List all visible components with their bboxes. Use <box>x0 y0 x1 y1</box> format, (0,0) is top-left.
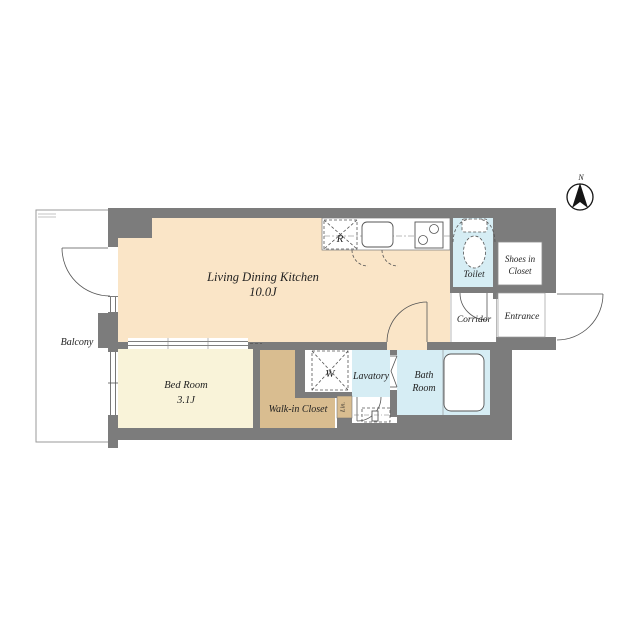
wall-segment <box>108 428 512 440</box>
floor-plan-canvas: N Living Dining Kitchen 10.0J Bed Room 3… <box>0 0 640 640</box>
label-toilet: Toilet <box>463 270 485 280</box>
label-balcony: Balcony <box>61 337 94 348</box>
label-bath-room: Bath <box>415 370 434 381</box>
label-lavatory: Lavatory <box>352 371 390 382</box>
toilet-tank-icon <box>462 219 487 232</box>
wall-segment <box>337 418 352 428</box>
wall-segment <box>390 350 397 355</box>
washbasin-icon <box>372 411 378 421</box>
wall-segment <box>490 350 512 428</box>
entrance-door-arc-icon <box>557 294 603 340</box>
balcony-doorway <box>108 247 118 296</box>
toilet-bowl-icon <box>464 236 486 268</box>
wall-segment <box>397 415 490 428</box>
label-corridor: Corridor <box>457 315 492 325</box>
room-ldk <box>118 238 450 342</box>
wall-segment <box>493 293 498 299</box>
wall-segment <box>260 342 387 350</box>
label-ldk: Living Dining Kitchen <box>206 270 319 284</box>
label-bath-room: Room <box>411 383 435 394</box>
bath-bifold-door-icon <box>391 356 397 387</box>
label-shoes-closet: Closet <box>508 266 532 276</box>
wall-segment <box>98 313 112 348</box>
wall-segment <box>390 390 397 417</box>
label-entrance: Entrance <box>504 312 540 322</box>
wall-segment <box>352 423 397 428</box>
wall-segment <box>295 342 305 398</box>
ldk-lavatory-doorway <box>387 342 427 350</box>
label-bedroom: Bed Room <box>164 380 208 391</box>
floor-plan: N Living Dining Kitchen 10.0J Bed Room 3… <box>0 0 640 640</box>
wall-segment <box>427 342 496 350</box>
label-refrigerator: R <box>336 233 344 245</box>
north-arrow-icon <box>572 183 588 208</box>
label-walk-in-closet: Walk-in Closet <box>269 404 328 415</box>
wall-segment <box>253 349 260 428</box>
label-ldk-size: 10.0J <box>249 285 278 299</box>
label-bedroom-size: 3.1J <box>176 395 196 406</box>
bathtub-icon <box>444 354 484 411</box>
kitchen-sink-icon <box>362 222 393 247</box>
bedroom-window <box>108 352 118 415</box>
wall-segment <box>496 337 556 350</box>
wall-segment <box>450 287 556 293</box>
lavatory-basin-area <box>352 397 390 423</box>
bedroom-sliding-door <box>128 338 248 349</box>
stove-icon <box>415 222 443 248</box>
north-label: N <box>577 173 584 182</box>
wall-segment <box>108 208 492 218</box>
label-linen: Lin. <box>340 401 347 413</box>
ldk-window <box>108 297 118 312</box>
label-shoes-closet: Shoes in <box>505 254 536 264</box>
label-washer: W <box>325 368 335 380</box>
